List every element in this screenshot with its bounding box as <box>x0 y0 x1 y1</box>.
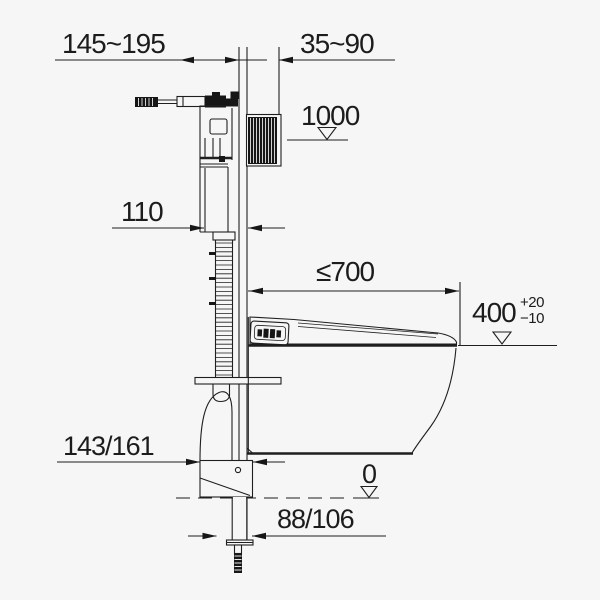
flush-pipe-corrugated <box>209 232 235 377</box>
supply-valve-rod <box>135 92 238 108</box>
pipe-clamp-mark <box>209 252 216 255</box>
level-marker-400 <box>458 332 557 346</box>
dim-label-depth-range: 145~195 <box>62 30 165 58</box>
seat-control-panel <box>250 321 289 345</box>
arrow-right-icon <box>225 57 239 63</box>
arrow-right-icon <box>203 533 217 539</box>
dim-label-88-106: 88/106 <box>277 506 354 533</box>
dim-label-110: 110 <box>121 198 163 226</box>
arrow-left-icon <box>279 57 293 63</box>
arrow-right-icon <box>445 288 459 294</box>
flush-plate <box>247 115 282 167</box>
arrow-left-icon <box>180 57 194 63</box>
cistern-window <box>210 119 227 134</box>
outlet-elbow <box>200 392 253 497</box>
dim-label-700: ≤700 <box>316 258 374 286</box>
toilet-seat <box>248 317 457 346</box>
level-label-1000: 1000 <box>301 102 359 130</box>
dim-label-143-161: 143/161 <box>63 433 154 460</box>
frame-top-bracket <box>231 92 240 100</box>
level-label-400: 400 <box>472 299 516 327</box>
technical-drawing-page: 145~195 35~90 1000 110 ≤700 400 +20 −10 … <box>0 0 600 600</box>
tolerance-minus: −10 <box>520 311 544 327</box>
arrow-left-icon <box>253 459 267 465</box>
arrow-left-icon <box>249 288 263 294</box>
mounting-bracket <box>195 378 281 385</box>
outlet-pipe <box>227 497 254 545</box>
level-triangle-icon <box>493 332 511 344</box>
cistern <box>200 106 238 232</box>
tolerance-stack: +20 −10 <box>520 295 544 327</box>
anchor-bolt <box>234 545 242 573</box>
arrow-right-icon <box>186 459 200 465</box>
level-label-0: 0 <box>362 461 376 488</box>
arrow-left-icon <box>248 225 262 231</box>
pipe-clamp-mark <box>209 302 216 305</box>
pipe-clamp-mark <box>209 277 216 280</box>
arrow-right-icon <box>190 225 204 231</box>
tolerance-plus: +20 <box>520 295 544 311</box>
arrow-left-icon <box>252 533 266 539</box>
dim-label-front-range: 35~90 <box>300 30 374 58</box>
